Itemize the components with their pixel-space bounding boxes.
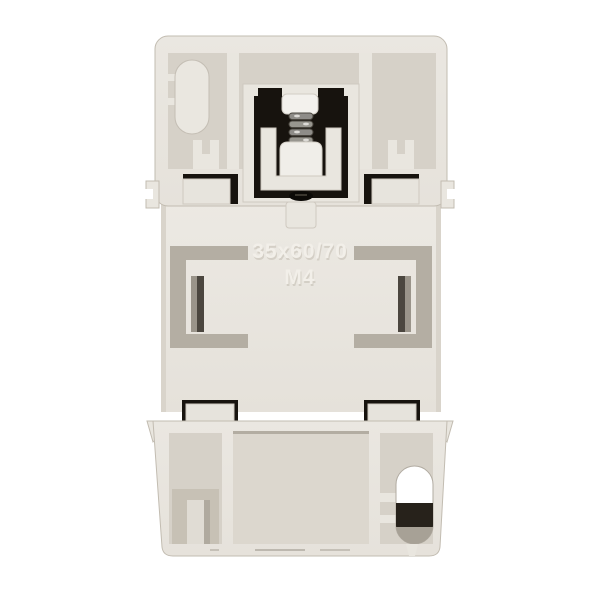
top-rib-right-divider	[359, 53, 372, 169]
groove-left-slot-highlight	[191, 276, 197, 332]
marking-line2: M4	[284, 266, 315, 289]
tab-face	[183, 179, 230, 204]
clip-frame-notch-right	[318, 88, 344, 97]
cavity-floor	[233, 431, 369, 544]
side-hook-right	[441, 181, 455, 208]
pocket-step-shadow	[204, 500, 210, 544]
clip-frame-notch-left	[258, 88, 282, 97]
bottom-right-pocket	[380, 433, 433, 556]
top-section	[145, 36, 455, 228]
bottom-left-pocket	[169, 433, 222, 544]
cable-hole	[396, 466, 433, 544]
cavity-top-edge	[233, 431, 369, 434]
tab-face	[372, 179, 419, 204]
mounting-tab-bottom-left	[182, 400, 238, 424]
mounting-tab-bottom-right	[364, 400, 420, 424]
device-photo: 35x60/70 35x60/70 M4 M4	[0, 0, 600, 600]
clip-top-cap	[282, 94, 318, 114]
device-rear-view: 35x60/70 35x60/70 M4 M4	[145, 36, 455, 556]
back-panel-right-shade	[436, 200, 441, 412]
clip-plunger	[280, 142, 322, 176]
bottom-section	[147, 421, 453, 556]
cable-hole-shadow	[396, 503, 433, 527]
clip-screw-slot	[295, 194, 307, 196]
side-hook-left	[145, 181, 159, 208]
mounting-tab-top-right	[364, 174, 419, 204]
photo-canvas: 35x60/70 35x60/70 M4 M4	[0, 0, 600, 600]
top-rib-left-divider	[227, 53, 239, 169]
groove-right-slot-highlight	[405, 276, 411, 332]
groove-right-slot	[398, 276, 405, 332]
pocket-step	[187, 500, 204, 544]
groove-left-slot	[197, 276, 204, 332]
clip-lower-tab	[286, 202, 316, 228]
marking-line1: 35x60/70	[252, 240, 348, 263]
mid-section: 35x60/70 35x60/70 M4 M4	[161, 200, 441, 424]
stadium-mount-hole	[175, 60, 209, 134]
bottom-center-cavity	[233, 431, 369, 544]
mounting-tab-top-left	[183, 174, 238, 204]
back-panel-left-shade	[161, 200, 166, 412]
